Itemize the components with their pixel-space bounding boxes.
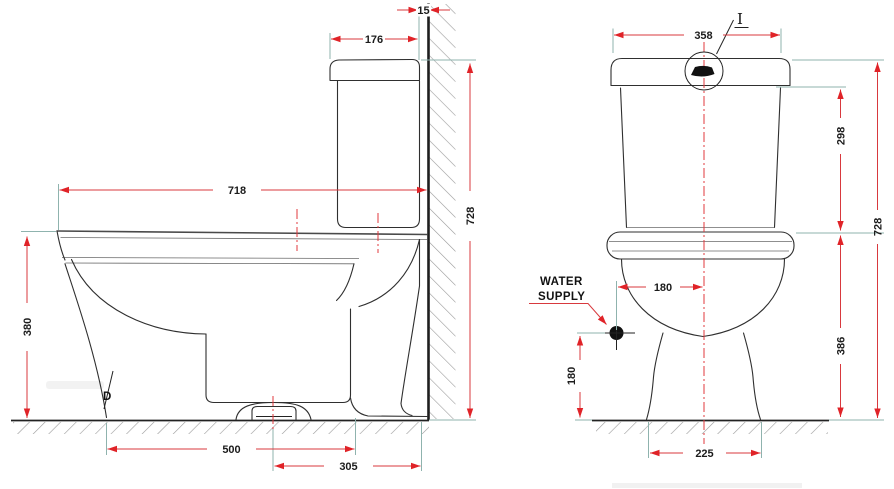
dim-380-label: 380 bbox=[22, 318, 34, 336]
detail-d-leader bbox=[104, 371, 113, 409]
dimension-cistern-height: 298 bbox=[836, 90, 848, 231]
rim-line-lower bbox=[66, 263, 355, 264]
technical-drawing-toilet: D 15 176 718 bbox=[0, 0, 894, 489]
pedestal-left bbox=[647, 333, 664, 420]
floor-hatching-side bbox=[13, 422, 429, 434]
trapway-outer bbox=[359, 240, 420, 307]
dimension-cistern-width: 358 bbox=[614, 30, 780, 42]
seat-lid-top bbox=[57, 231, 427, 235]
toilet-side-outline bbox=[57, 60, 427, 420]
rim-band bbox=[607, 232, 794, 259]
dim-500-label: 500 bbox=[222, 444, 240, 456]
cistern-left-edge bbox=[621, 88, 627, 228]
dim-728-front-label: 728 bbox=[873, 218, 885, 236]
dimension-base-width: 225 bbox=[650, 448, 761, 460]
front-view: I WATER SUPPLY 358 bbox=[529, 10, 885, 488]
dim-718-label: 718 bbox=[228, 185, 246, 197]
bowl-nose bbox=[57, 231, 65, 260]
pedestal-right bbox=[744, 333, 761, 420]
pedestal-side bbox=[206, 309, 351, 403]
water-supply-label-line2: SUPPLY bbox=[538, 291, 585, 303]
dim-15-label: 15 bbox=[417, 5, 429, 17]
dimension-rim-height-front: 386 bbox=[836, 236, 848, 418]
dim-305-label: 305 bbox=[339, 461, 357, 473]
bowl-front bbox=[622, 259, 785, 337]
dimension-front-to-outlet: 500 bbox=[108, 444, 355, 456]
dimension-supply-offset: 180 bbox=[618, 282, 703, 294]
seat-lid-edge bbox=[61, 238, 428, 240]
cistern-body-side bbox=[338, 81, 420, 228]
dim-180-height-label: 180 bbox=[566, 367, 578, 385]
rear-foot-curve bbox=[401, 404, 412, 416]
dim-176-label: 176 bbox=[365, 34, 383, 46]
dim-225-label: 225 bbox=[695, 448, 713, 460]
dim-728-side-label: 728 bbox=[465, 207, 477, 225]
dimension-overall-height-front: 728 bbox=[873, 63, 885, 419]
dim-180-offset-label: 180 bbox=[654, 282, 672, 294]
water-supply-leader bbox=[529, 304, 607, 325]
dimension-outlet-to-wall: 305 bbox=[275, 461, 421, 473]
detail-i-leader bbox=[717, 20, 734, 54]
wall-hatching bbox=[430, 4, 456, 419]
faint-watermark bbox=[46, 381, 104, 389]
outlet-socket bbox=[252, 407, 296, 420]
water-supply-label-line1: WATER bbox=[540, 276, 583, 288]
cistern-right-edge bbox=[775, 88, 781, 228]
detail-d-label: D bbox=[103, 391, 112, 403]
bowl-inner-curve bbox=[72, 260, 207, 335]
dim-386-label: 386 bbox=[836, 337, 848, 355]
dim-358-label: 358 bbox=[694, 30, 712, 42]
dimension-overall-height-side: 728 bbox=[465, 64, 477, 419]
extension-lines-front bbox=[575, 29, 884, 459]
dim-298-label: 298 bbox=[836, 127, 848, 145]
floor-hatching-front bbox=[596, 422, 828, 434]
dimension-rim-height: 380 bbox=[22, 237, 34, 419]
dimension-overall-depth: 718 bbox=[60, 185, 427, 197]
bowl-front-edge bbox=[65, 264, 107, 418]
toilet-front-outline bbox=[607, 59, 794, 420]
flush-button-icon bbox=[691, 66, 715, 77]
dimension-supply-height: 180 bbox=[566, 336, 580, 418]
dimension-cistern-depth: 176 bbox=[331, 34, 418, 46]
rear-base bbox=[351, 398, 428, 417]
illegible-caption bbox=[612, 483, 802, 488]
cistern-lid-side bbox=[330, 60, 420, 81]
rim-line-upper bbox=[62, 258, 359, 259]
side-view: D 15 176 718 bbox=[11, 3, 477, 473]
detail-i-label: I bbox=[737, 10, 743, 28]
drawing-svg: D 15 176 718 bbox=[0, 0, 894, 489]
trapway-inner bbox=[337, 264, 355, 301]
